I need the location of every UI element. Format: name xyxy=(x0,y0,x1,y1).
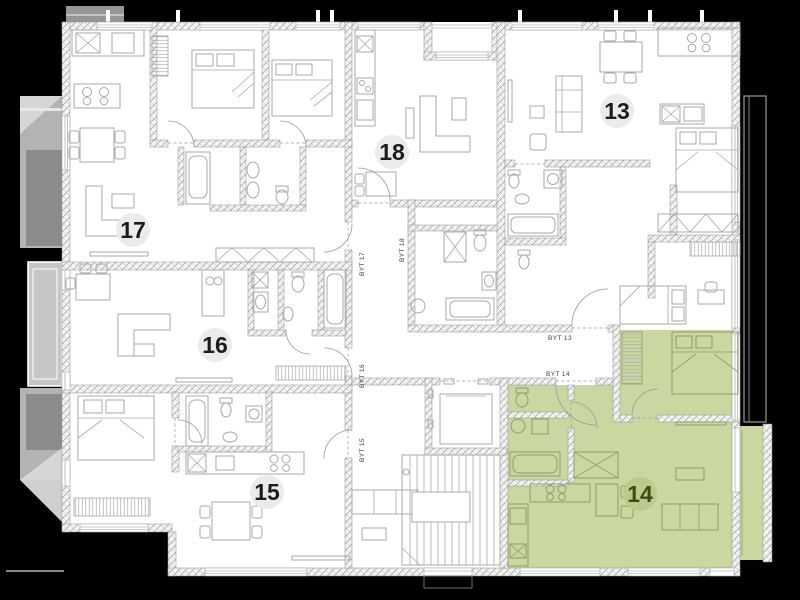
label-byt15: BYT 15 xyxy=(359,438,366,462)
badge-unit-17[interactable]: 17 xyxy=(116,213,150,247)
badge-unit-18[interactable]: 18 xyxy=(375,135,409,169)
unit-14-loggia xyxy=(740,426,765,560)
badge-label-13: 13 xyxy=(604,98,630,124)
badge-label-14: 14 xyxy=(627,481,653,507)
label-byt17: BYT 17 xyxy=(359,252,366,276)
badge-label-16: 16 xyxy=(202,332,228,358)
badge-label-17: 17 xyxy=(120,217,146,243)
badge-unit-16[interactable]: 16 xyxy=(198,328,232,362)
label-byt13: BYT 13 xyxy=(548,335,572,342)
badge-label-18: 18 xyxy=(379,139,405,165)
floorplan-canvas: BYT 17 BYT 18 BYT 16 BYT 15 BYT 13 BYT 1… xyxy=(0,0,800,600)
label-byt14: BYT 14 xyxy=(546,371,570,378)
badge-unit-14[interactable]: 14 xyxy=(623,477,657,511)
label-byt16: BYT 16 xyxy=(359,364,366,388)
label-byt18: BYT 18 xyxy=(399,238,406,262)
badge-label-15: 15 xyxy=(254,479,280,505)
floorplan-svg: BYT 17 BYT 18 BYT 16 BYT 15 BYT 13 BYT 1… xyxy=(0,0,800,600)
badge-unit-13[interactable]: 13 xyxy=(600,94,634,128)
badge-unit-15[interactable]: 15 xyxy=(250,475,284,509)
